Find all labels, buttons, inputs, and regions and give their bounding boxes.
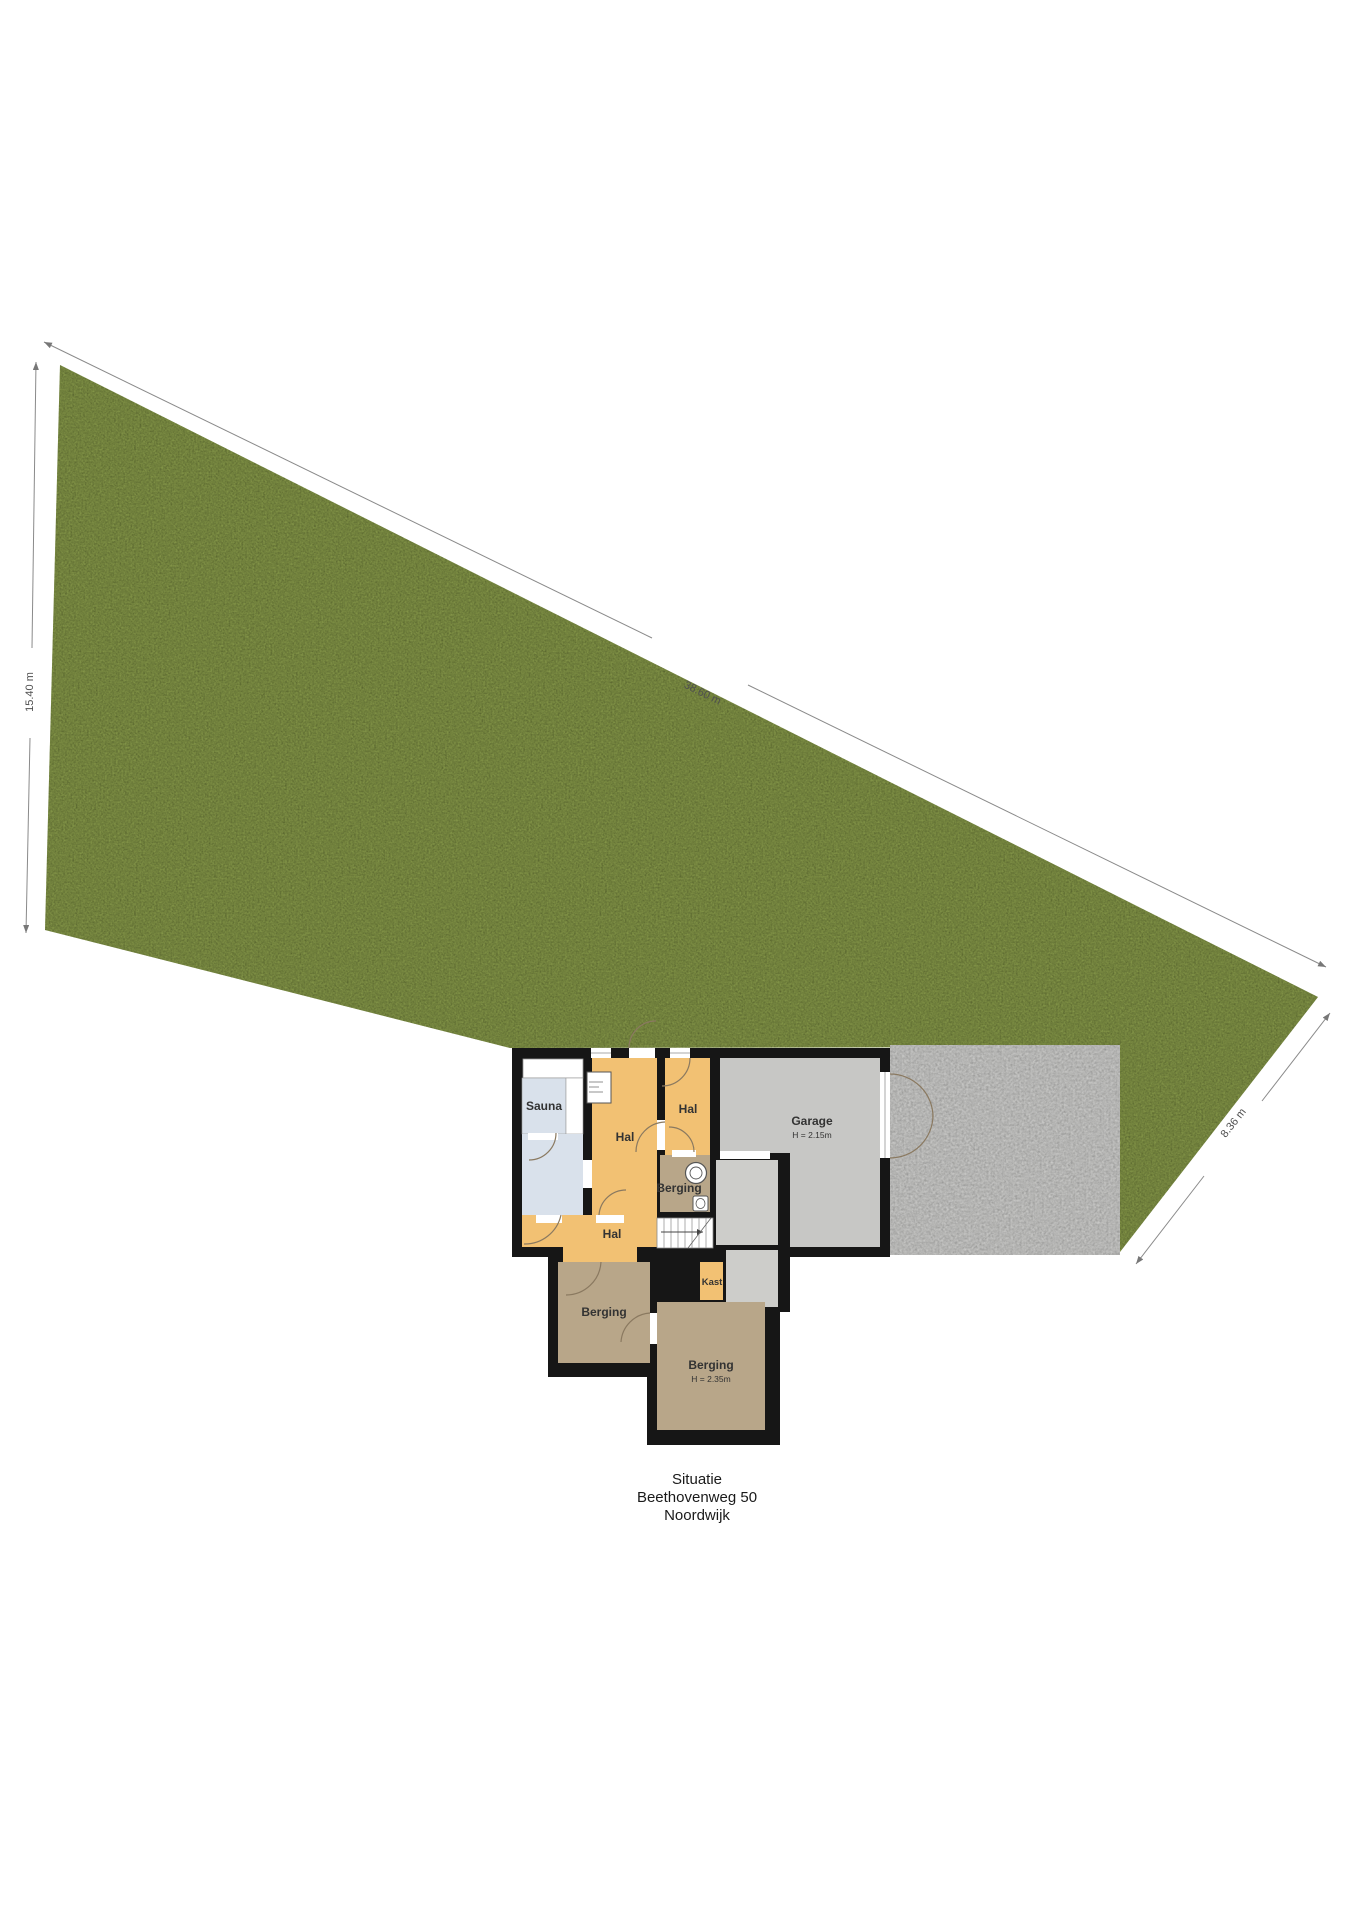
label-kast: Kast	[702, 1277, 723, 1288]
title-line-1: Situatie	[672, 1471, 722, 1488]
label-hal-center: Hal	[616, 1130, 635, 1144]
label-garage: Garage	[791, 1114, 833, 1128]
opening-berging-berging	[650, 1313, 657, 1344]
sink-icon	[693, 1196, 708, 1211]
opening-bath-hal	[583, 1160, 592, 1188]
dim-line-left-seg1	[32, 362, 36, 648]
label-hal-lower: Hal	[603, 1227, 622, 1241]
sauna-side-strip	[566, 1078, 583, 1134]
opening-garage-strip	[720, 1151, 770, 1159]
label-berging-bottom-height: H = 2.35m	[691, 1374, 730, 1384]
title-line-3: Noordwijk	[664, 1507, 730, 1524]
title-line-2: Beethovenweg 50	[637, 1489, 757, 1506]
driveway-concrete	[890, 1045, 1120, 1255]
dim-label-left: 15.40 m	[24, 672, 36, 712]
counter-fixture	[587, 1072, 611, 1103]
opening-hal-hal	[657, 1120, 665, 1150]
title-block: Situatie Beethovenweg 50 Noordwijk	[637, 1471, 757, 1524]
label-berging-upper: Berging	[656, 1181, 701, 1195]
opening-hal-berging	[672, 1150, 696, 1157]
opening-bath-lowerhal	[536, 1215, 562, 1223]
dim-line-left-seg2	[26, 738, 30, 933]
opening-sauna-bath	[528, 1133, 558, 1140]
opening-hal-lowerhal	[596, 1215, 624, 1223]
floorplan-canvas: 38.60 m 15.40 m 8.36 m	[0, 0, 1358, 1920]
label-berging-bottom: Berging	[688, 1358, 733, 1372]
driveway-area	[890, 1045, 1120, 1255]
garage-entry-strip	[716, 1160, 778, 1245]
label-hal-upper-right: Hal	[679, 1102, 698, 1116]
label-garage-height: H = 2.15m	[792, 1130, 831, 1140]
garage-entry-strip-lower	[726, 1250, 778, 1307]
opening-top-2	[629, 1048, 655, 1058]
label-sauna: Sauna	[526, 1099, 562, 1113]
situatie-plan-page: 38.60 m 15.40 m 8.36 m	[0, 0, 1358, 1920]
label-berging-left: Berging	[581, 1305, 626, 1319]
closet-room	[523, 1059, 583, 1078]
hal-lower-bump	[563, 1247, 637, 1262]
